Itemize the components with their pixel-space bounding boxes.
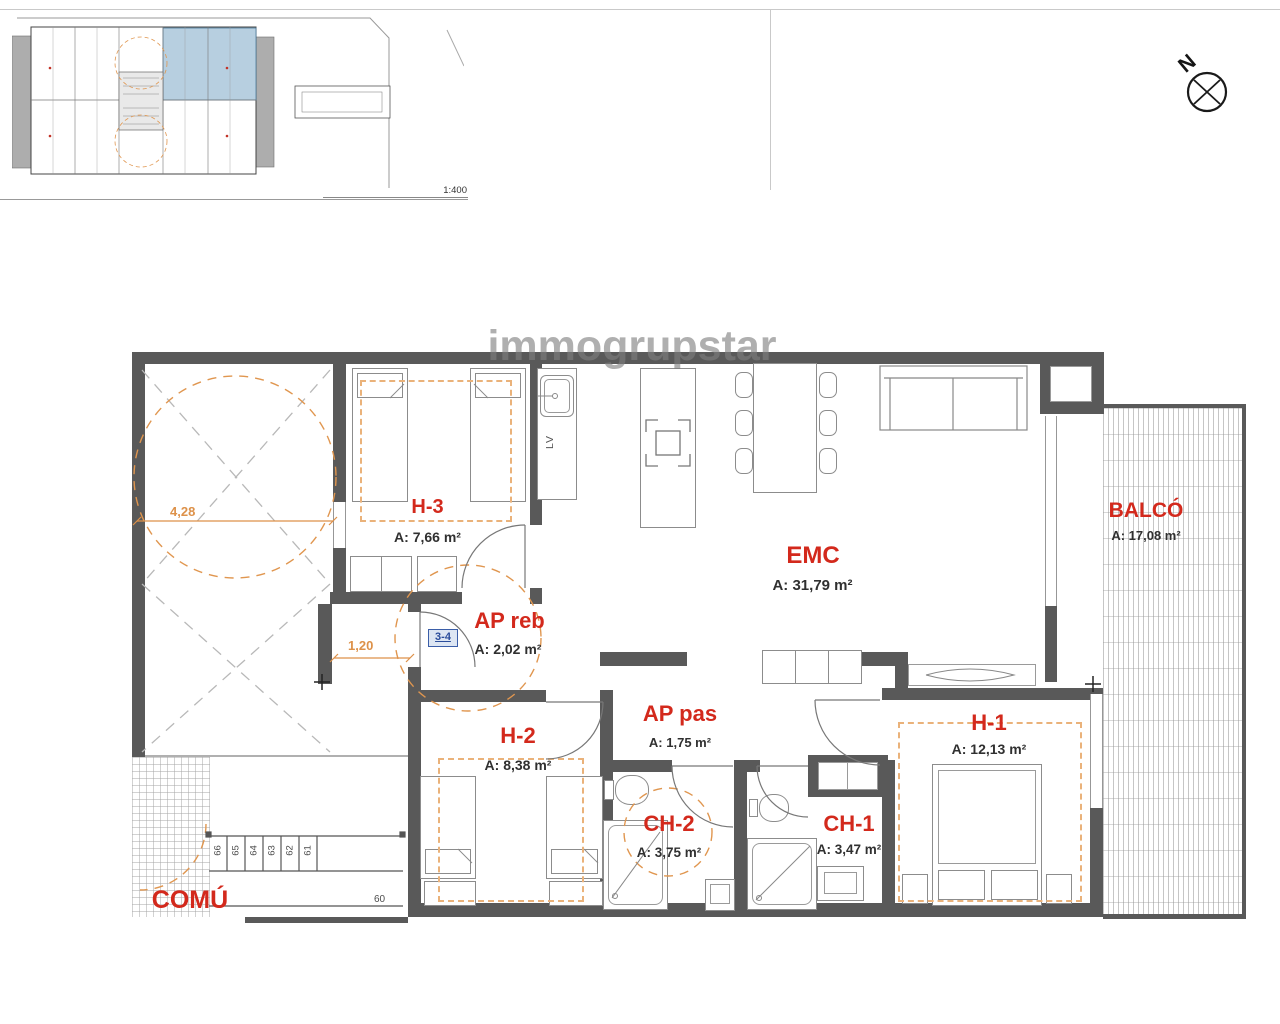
patio-cross-lines — [142, 370, 330, 752]
turning-circles — [134, 376, 712, 890]
sofa — [880, 366, 1027, 430]
room-label-h1: H-1 — [958, 712, 1020, 734]
room-label-comu: COMÚ — [140, 888, 240, 913]
room-label-emc: EMC — [772, 544, 854, 568]
fixture-details — [537, 394, 1014, 901]
dimension-hall: 1,20 — [348, 638, 373, 653]
room-label-ch2: CH-2 — [634, 813, 704, 835]
stair-number: 62 — [285, 844, 296, 858]
room-area-h1: A: 12,13 m² — [948, 742, 1030, 756]
room-area-ch2: A: 3,75 m² — [628, 846, 710, 860]
room-label-ch1: CH-1 — [814, 813, 884, 835]
cooktop-icon — [646, 420, 690, 466]
room-area-ch1: A: 3,47 m² — [812, 843, 886, 857]
room-area-balco: A: 17,08 m² — [1105, 529, 1187, 542]
stair-number-bottom: 60 — [374, 894, 385, 905]
room-label-ap-reb: AP reb — [452, 610, 567, 632]
stair-number: 63 — [267, 844, 278, 858]
dimension-patio: 4,28 — [170, 504, 195, 519]
stair-number: 66 — [213, 844, 224, 858]
room-area-h3: A: 7,66 m² — [375, 530, 480, 544]
door-arcs — [420, 525, 880, 827]
room-area-h2: A: 8,38 m² — [472, 758, 564, 772]
room-label-balco: BALCÓ — [1105, 500, 1187, 521]
stair-number: 65 — [231, 844, 242, 858]
unit-number-badge: 3-4 — [428, 629, 458, 647]
survey-cross-markers — [314, 674, 1101, 692]
room-label-ap-pas: AP pas — [636, 703, 724, 725]
stair-number: 64 — [249, 844, 260, 858]
room-area-emc: A: 31,79 m² — [765, 578, 860, 593]
room-area-ap-reb: A: 2,02 m² — [458, 642, 558, 656]
stair-number: 61 — [303, 844, 314, 858]
dishwasher-label: LV — [544, 419, 556, 449]
watermark: immogrupstar — [472, 322, 792, 371]
room-area-ap-pas: A: 1,75 m² — [642, 736, 718, 749]
room-label-h3: H-3 — [370, 497, 485, 517]
room-label-h2: H-2 — [478, 725, 558, 747]
north-compass-icon — [1188, 73, 1226, 111]
